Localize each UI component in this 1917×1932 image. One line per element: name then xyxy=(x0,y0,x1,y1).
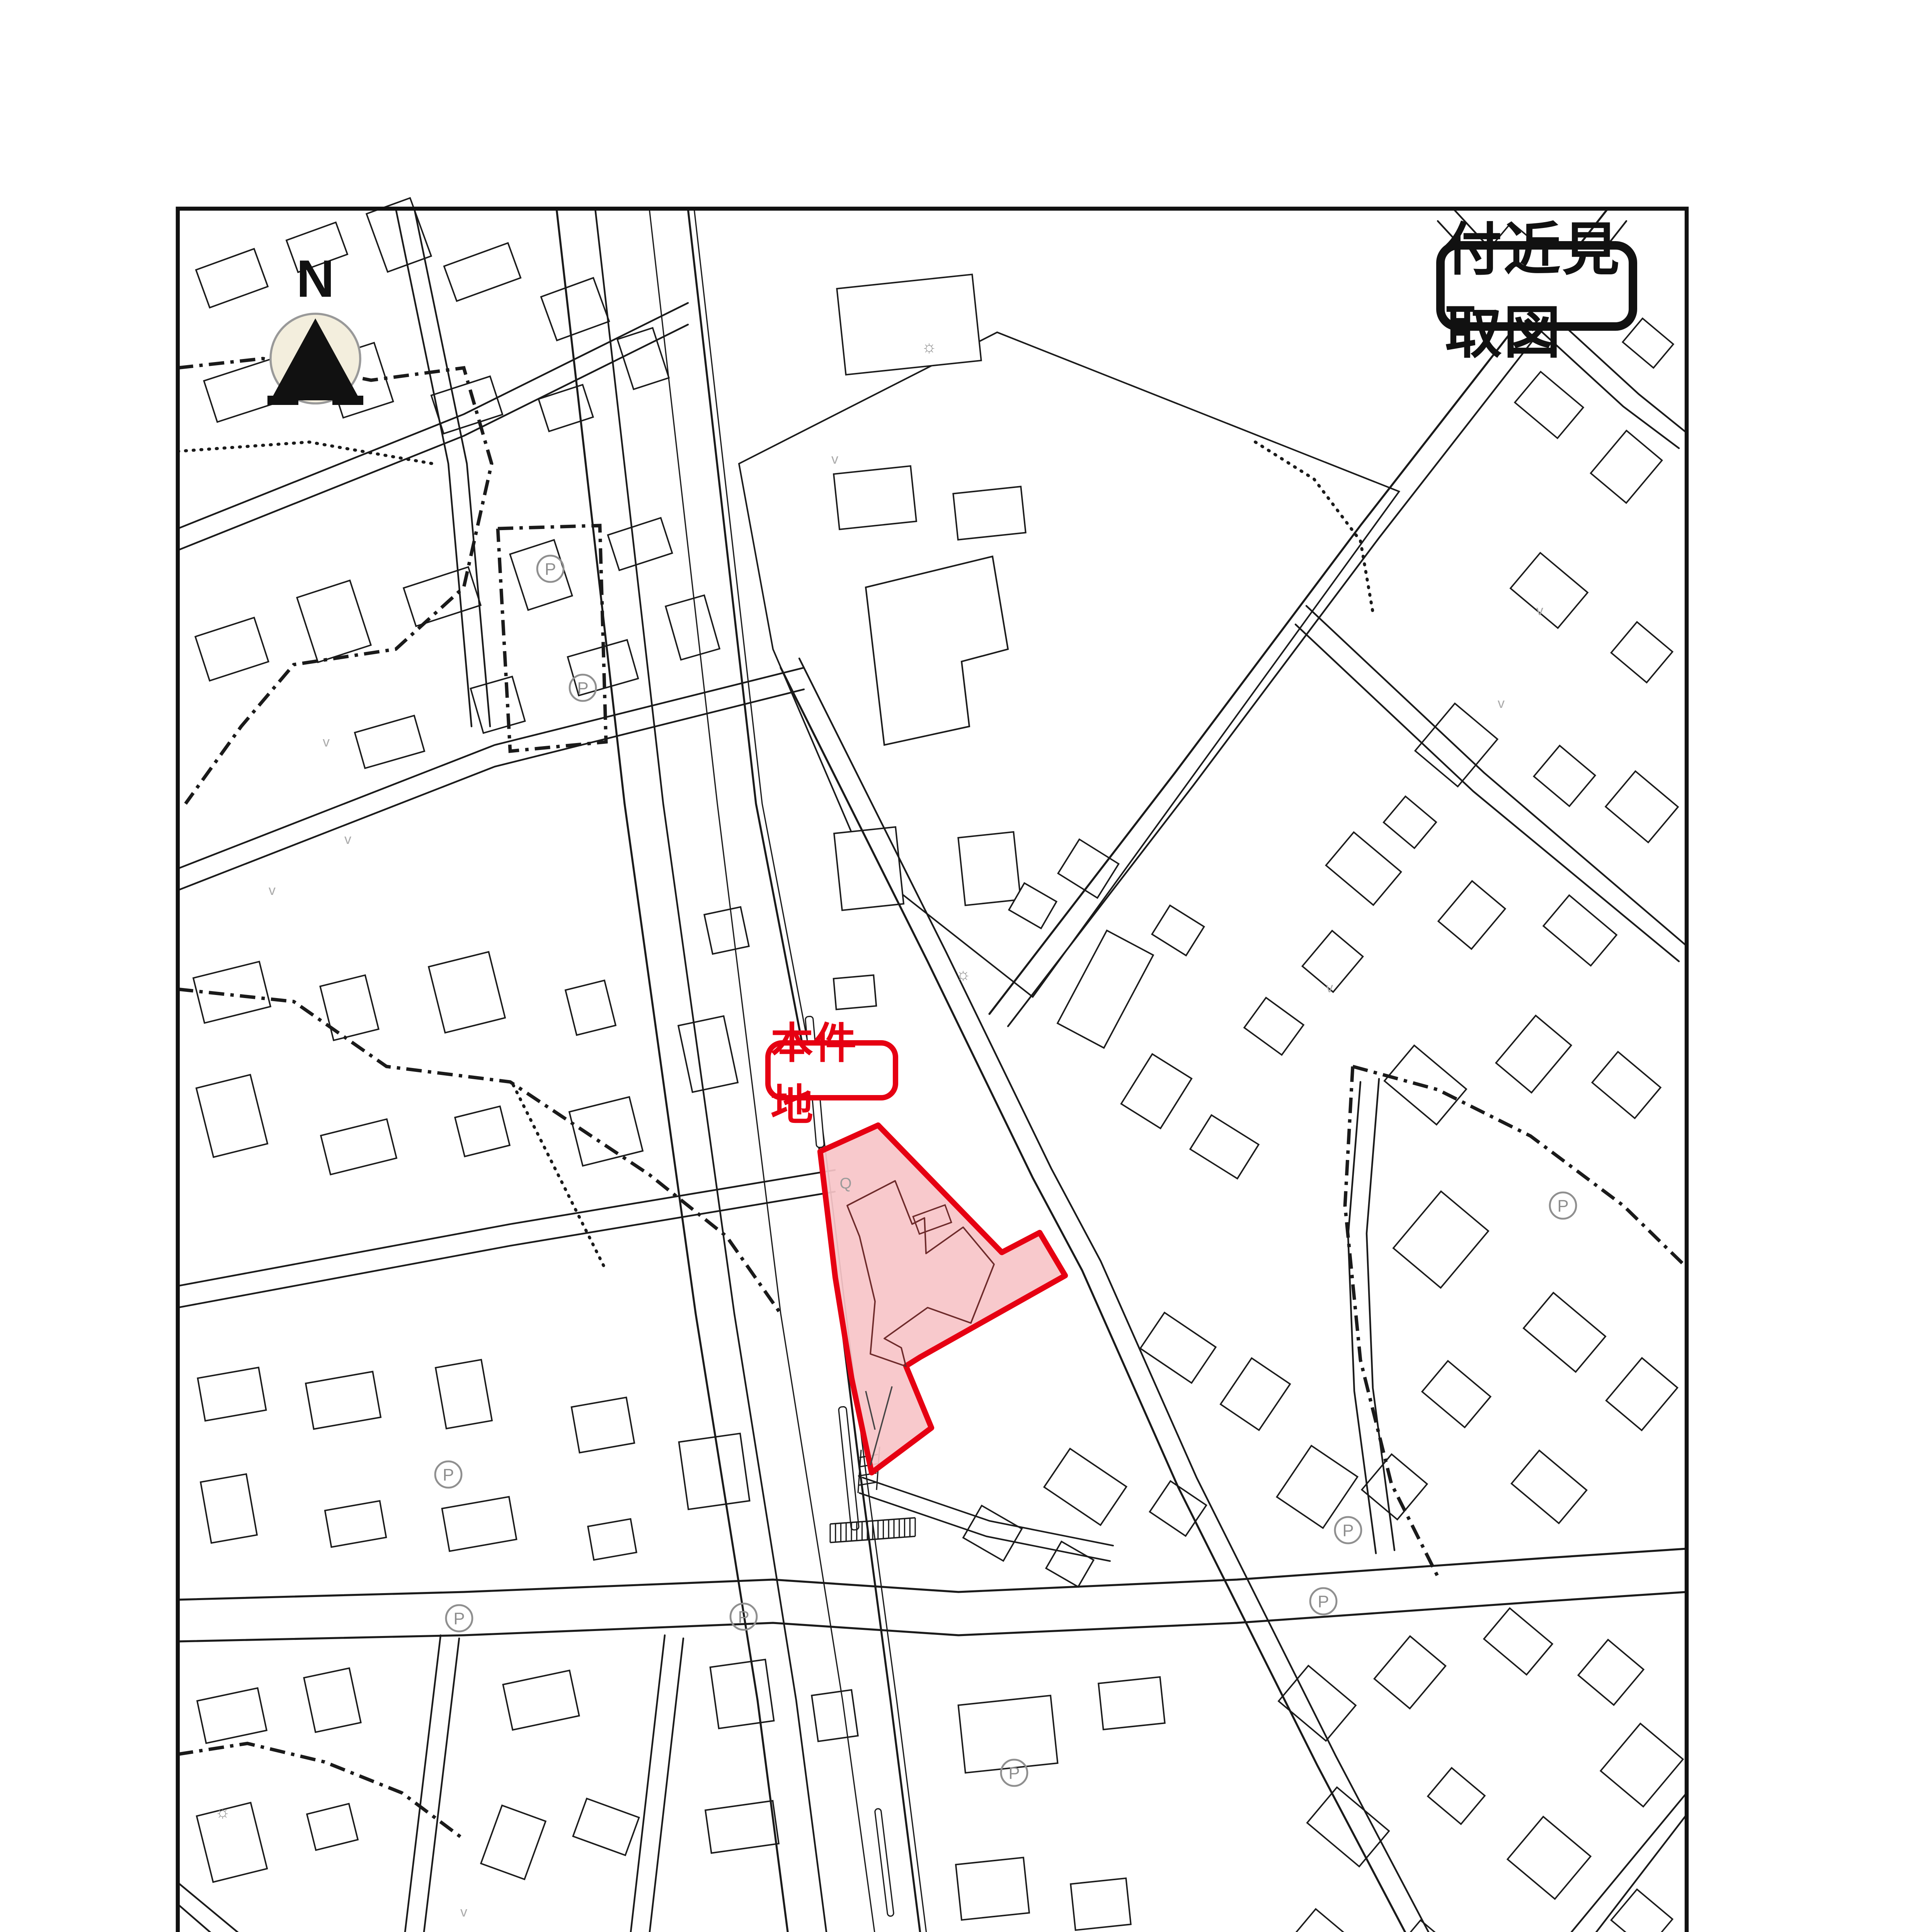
road-line xyxy=(612,1635,665,1932)
building-outline xyxy=(1622,318,1673,368)
building-outline xyxy=(471,677,525,733)
building-outline xyxy=(1121,1054,1192,1128)
field-outline xyxy=(866,556,1008,745)
building-outline xyxy=(1510,553,1588,628)
building-outline xyxy=(705,1801,779,1853)
north-arrow-foot-left xyxy=(267,396,298,405)
building-outline xyxy=(1152,905,1204,956)
building-outline xyxy=(573,1799,639,1855)
building-outline xyxy=(320,975,378,1041)
parking-icon-letter: P xyxy=(1557,1197,1568,1216)
north-arrow-foot-right xyxy=(332,396,363,405)
building-outline xyxy=(195,617,268,681)
building-outline xyxy=(958,832,1021,905)
building-outline xyxy=(1600,1723,1683,1806)
building-outline xyxy=(1190,1115,1258,1179)
building-outline xyxy=(1279,1666,1356,1741)
survey-check-mark: v xyxy=(831,451,838,467)
building-outline xyxy=(1140,1313,1216,1383)
building-outline xyxy=(588,1519,637,1560)
building-outline xyxy=(1428,1768,1485,1824)
building-outline xyxy=(355,716,424,768)
building-outline xyxy=(1244,998,1304,1055)
building-outline xyxy=(1046,1541,1093,1587)
building-outline xyxy=(1276,1909,1358,1932)
parking-icon-letter: P xyxy=(577,679,588,698)
building-outline xyxy=(306,1372,381,1429)
survey-check-mark: v xyxy=(1326,980,1333,995)
building-outline xyxy=(704,907,749,954)
building-outline xyxy=(837,274,981,375)
survey-check-mark: v xyxy=(1536,602,1543,618)
parking-icon-letter: P xyxy=(453,1609,465,1628)
north-label: N xyxy=(296,249,334,308)
survey-check-mark: v xyxy=(460,1904,467,1920)
building-outline xyxy=(455,1106,510,1156)
building-outline xyxy=(679,1434,750,1510)
building-outline xyxy=(481,1805,545,1879)
road-line xyxy=(178,1904,646,1932)
building-outline xyxy=(1221,1358,1290,1430)
building-outline xyxy=(572,1397,635,1452)
road-line xyxy=(178,303,688,529)
survey-check-mark: v xyxy=(323,734,330,750)
road-line xyxy=(178,1883,665,1932)
building-outline xyxy=(197,1803,267,1882)
building-outline xyxy=(297,580,371,662)
building-outline xyxy=(307,1804,358,1850)
building-outline xyxy=(196,1075,267,1157)
building-outline xyxy=(812,1690,858,1741)
building-outline xyxy=(436,1360,492,1429)
building-outline xyxy=(1277,1446,1358,1528)
building-outline xyxy=(321,1119,397,1174)
parking-icon-letter: P xyxy=(443,1466,454,1485)
building-outline xyxy=(1384,796,1436,848)
building-outline xyxy=(1057,930,1153,1048)
building-outline xyxy=(403,567,481,626)
building-outline xyxy=(197,1367,266,1421)
subject-site-parcel xyxy=(820,1125,1065,1473)
vicinity-map-page: PPPPPPPPPQ☼☼☼vvvvvvvvN105010203040506070… xyxy=(0,0,1917,1932)
building-outline xyxy=(431,376,502,434)
building-outline xyxy=(565,980,616,1035)
building-outline xyxy=(1534,746,1595,806)
building-outline xyxy=(1438,881,1505,949)
building-outline xyxy=(1098,1677,1165,1730)
building-outline xyxy=(1605,771,1678,842)
building-outline xyxy=(325,1501,386,1547)
map-title-box: 付近見取図 xyxy=(1436,241,1637,331)
building-outline xyxy=(834,975,877,1010)
parking-icon-letter: P xyxy=(1342,1521,1353,1540)
building-outline xyxy=(1393,1191,1488,1288)
building-outline xyxy=(1307,1787,1389,1866)
building-outline xyxy=(1611,1889,1673,1932)
boundary-dotted xyxy=(178,442,433,464)
building-outline xyxy=(678,1016,738,1092)
building-outline xyxy=(442,1497,517,1551)
building-outline xyxy=(953,486,1026,540)
building-outline xyxy=(1592,1052,1660,1118)
building-outline xyxy=(444,243,521,301)
building-outline xyxy=(196,249,268,308)
building-outline xyxy=(503,1670,579,1730)
parking-icon-letter: P xyxy=(1318,1592,1329,1611)
building-outline xyxy=(963,1505,1022,1561)
building-outline xyxy=(197,1688,267,1743)
field-outline xyxy=(739,332,1399,997)
road-line xyxy=(631,1638,683,1932)
building-outline xyxy=(608,518,672,570)
building-outline xyxy=(956,1857,1029,1920)
building-outline xyxy=(1606,1358,1677,1430)
building-outline xyxy=(1591,430,1662,503)
survey-check-mark: v xyxy=(344,831,351,847)
building-outline xyxy=(834,827,904,910)
road-line xyxy=(178,1549,1687,1600)
building-outline xyxy=(1515,372,1583,438)
building-outline xyxy=(1071,1878,1131,1930)
parking-icon-letter: P xyxy=(1008,1764,1020,1783)
map-title: 付近見取図 xyxy=(1445,203,1629,369)
map-frame xyxy=(178,209,1687,1932)
building-outline xyxy=(666,595,720,660)
building-outline xyxy=(710,1660,774,1728)
parking-icon-letter: P xyxy=(738,1608,749,1627)
site-label-box: 本件地 xyxy=(765,1040,898,1100)
building-outline xyxy=(1524,1293,1605,1372)
survey-check-mark: v xyxy=(269,882,276,898)
road-line xyxy=(178,1592,1687,1641)
utility-icon: ☼ xyxy=(215,1803,230,1821)
building-outline xyxy=(429,952,505,1032)
utility-icon: ☼ xyxy=(955,965,971,984)
building-outline xyxy=(304,1668,361,1732)
building-outline xyxy=(1374,1636,1445,1708)
building-outline xyxy=(569,1097,643,1166)
building-outline xyxy=(1543,895,1616,966)
median-island xyxy=(875,1808,894,1917)
site-label: 本件地 xyxy=(771,1009,893,1132)
parking-icon-letter: P xyxy=(545,560,556,579)
building-outline xyxy=(1326,832,1401,905)
building-outline xyxy=(1362,1454,1427,1519)
building-outline xyxy=(1578,1639,1643,1705)
road-line xyxy=(383,1635,441,1932)
building-outline xyxy=(1044,1449,1126,1525)
road-line xyxy=(178,1170,835,1286)
building-outline xyxy=(541,278,609,340)
building-outline xyxy=(834,466,916,529)
building-outline xyxy=(1507,1816,1590,1899)
building-outline xyxy=(1512,1451,1587,1524)
building-outline xyxy=(193,961,271,1023)
well-icon: Q xyxy=(839,1175,851,1192)
building-outline xyxy=(538,385,593,432)
median-island xyxy=(838,1406,859,1530)
building-outline xyxy=(1484,1608,1552,1675)
building-outline xyxy=(1058,839,1119,898)
building-outline xyxy=(1422,1361,1490,1427)
survey-check-mark: v xyxy=(1498,695,1505,711)
utility-icon: ☼ xyxy=(921,337,937,356)
building-outline xyxy=(1496,1015,1571,1093)
building-outline xyxy=(1611,622,1673,683)
building-outline xyxy=(201,1474,257,1543)
